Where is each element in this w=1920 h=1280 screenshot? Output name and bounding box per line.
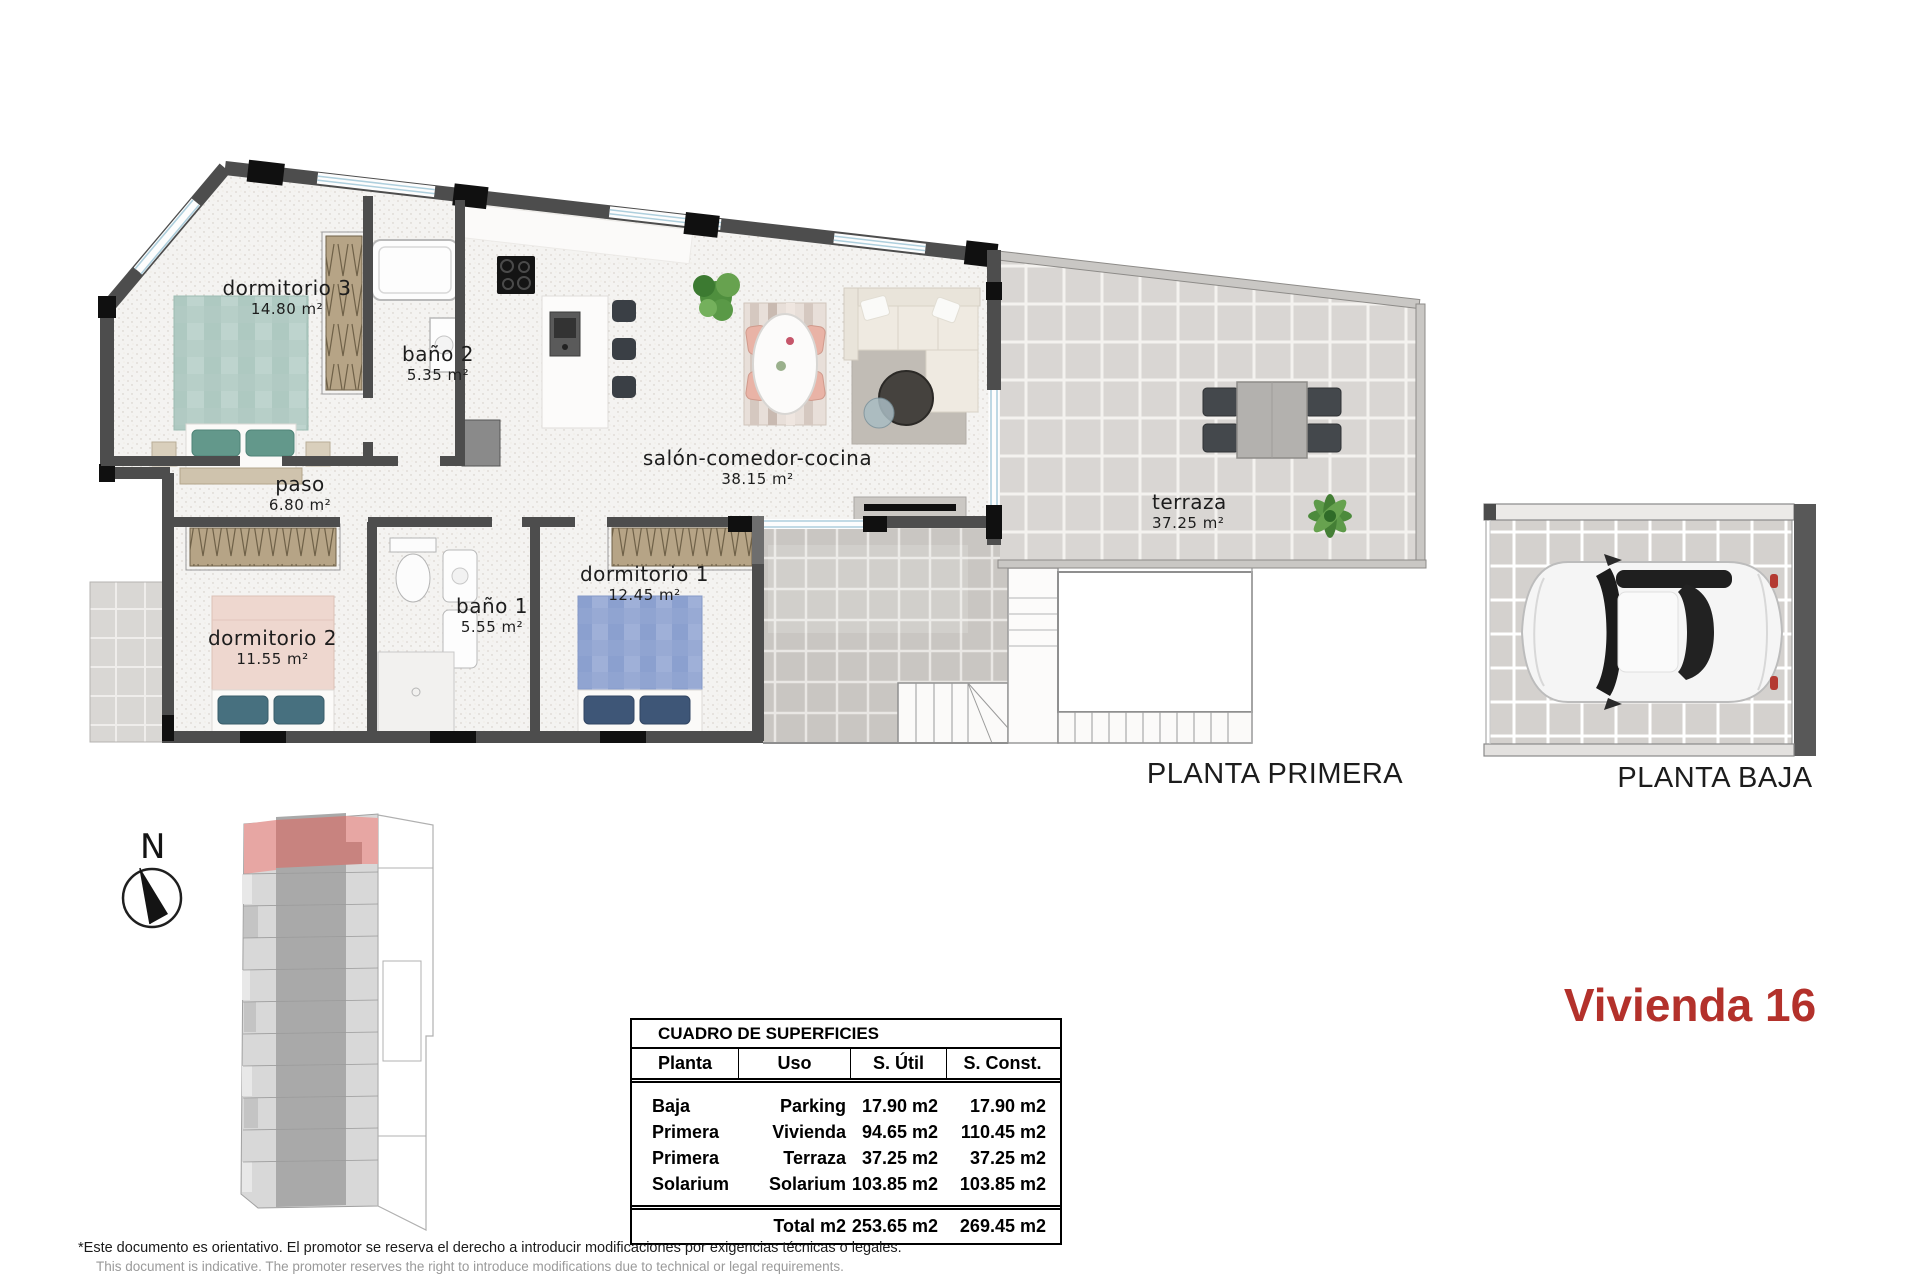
table-row: BajaParking 17.90 m217.90 m2 bbox=[632, 1093, 1060, 1119]
disclaimer-en: This document is indicative. The promote… bbox=[96, 1259, 902, 1274]
surfaces-table-body: BajaParking 17.90 m217.90 m2 PrimeraVivi… bbox=[632, 1083, 1060, 1210]
table-row: PrimeraTerraza 37.25 m237.25 m2 bbox=[632, 1145, 1060, 1171]
column bbox=[986, 282, 1002, 300]
stairs-main-icon bbox=[898, 683, 1008, 743]
room-label-dormitorio1: dormitorio 1 12.45 m² bbox=[552, 564, 737, 604]
room-label-salon: salón-comedor-cocina 38.15 m² bbox=[595, 448, 920, 488]
floor-plan-baja bbox=[1480, 498, 1820, 766]
dining-set-icon bbox=[744, 303, 826, 425]
room-label-bano2: baño 2 5.35 m² bbox=[368, 344, 508, 384]
palm-plant-icon bbox=[1308, 494, 1352, 538]
terrace-wall-bottom bbox=[998, 560, 1426, 568]
car-icon bbox=[1522, 554, 1782, 710]
column bbox=[1484, 504, 1496, 520]
wardrobe-dormitorio2-icon bbox=[186, 524, 340, 570]
stair-void bbox=[1058, 572, 1252, 712]
room-label-dormitorio2: dormitorio 2 11.55 m² bbox=[180, 628, 365, 668]
disclaimer: *Este documento es orientativo. El promo… bbox=[78, 1240, 902, 1274]
living-terrace-window bbox=[991, 390, 997, 505]
surfaces-table: CUADRO DE SUPERFICIES Planta Uso S. Útil… bbox=[630, 1018, 1062, 1245]
tv-icon bbox=[864, 504, 956, 511]
column bbox=[986, 505, 1002, 539]
stool-icon bbox=[612, 300, 636, 322]
wall-accent bbox=[430, 731, 476, 743]
stairs-lower-icon bbox=[1058, 712, 1252, 743]
shower-icon bbox=[378, 652, 454, 732]
terrace-wall-right bbox=[1416, 304, 1425, 566]
room-label-dormitorio3: dormitorio 3 14.80 m² bbox=[197, 278, 377, 318]
column bbox=[728, 516, 752, 532]
column bbox=[99, 464, 115, 482]
room-label-terraza: terraza 37.25 m² bbox=[1152, 492, 1292, 532]
surfaces-table-title: CUADRO DE SUPERFICIES bbox=[632, 1020, 1060, 1049]
caption-planta-baja: PLANTA BAJA bbox=[1570, 762, 1860, 795]
toilet-icon bbox=[390, 538, 436, 552]
surfaces-table-total: Total m2 253.65 m2 269.45 m2 bbox=[632, 1210, 1060, 1243]
appliance-column-icon bbox=[462, 420, 500, 466]
garage-wall-top bbox=[1484, 504, 1794, 520]
column bbox=[863, 516, 887, 532]
bed-dormitorio1-icon bbox=[578, 596, 702, 736]
terrace-glass-door bbox=[764, 521, 865, 527]
caption-planta-primera: PLANTA PRIMERA bbox=[1130, 758, 1420, 791]
disclaimer-es: *Este documento es orientativo. El promo… bbox=[78, 1240, 902, 1256]
stool-icon bbox=[612, 376, 636, 398]
table-row: PrimeraVivienda 94.65 m2110.45 m2 bbox=[632, 1119, 1060, 1145]
wall-accent bbox=[600, 731, 646, 743]
bathtub-icon bbox=[372, 240, 458, 300]
wall-accent bbox=[240, 731, 286, 743]
room-label-bano1: baño 1 5.55 m² bbox=[432, 596, 552, 636]
table-row: SolariumSolarium 103.85 m2103.85 m2 bbox=[632, 1171, 1060, 1197]
courtyard-light-patch bbox=[768, 545, 968, 633]
north-label: N bbox=[140, 827, 165, 867]
side-table-icon bbox=[864, 398, 894, 428]
garage-wall-right bbox=[1794, 504, 1816, 756]
stool-icon bbox=[612, 338, 636, 360]
surfaces-table-header: Planta Uso S. Útil S. Const. bbox=[632, 1049, 1060, 1083]
site-plan bbox=[228, 806, 453, 1236]
column bbox=[162, 715, 174, 741]
floorplan-sheet: { "title": {"text": "Vivienda 16", "colo… bbox=[0, 0, 1920, 1280]
site-core bbox=[276, 813, 346, 1207]
page-title: Vivienda 16 bbox=[1545, 978, 1835, 1032]
door-jamb bbox=[752, 516, 764, 564]
site-unit-highlight bbox=[244, 820, 276, 874]
column bbox=[98, 296, 116, 318]
compass-needle-icon bbox=[140, 868, 168, 924]
stairs-landing bbox=[1008, 568, 1058, 743]
room-label-paso: paso 6.80 m² bbox=[225, 474, 375, 514]
garage-wall-bottom bbox=[1484, 744, 1794, 756]
exterior-paving bbox=[90, 582, 166, 742]
north-compass: N bbox=[100, 818, 210, 938]
